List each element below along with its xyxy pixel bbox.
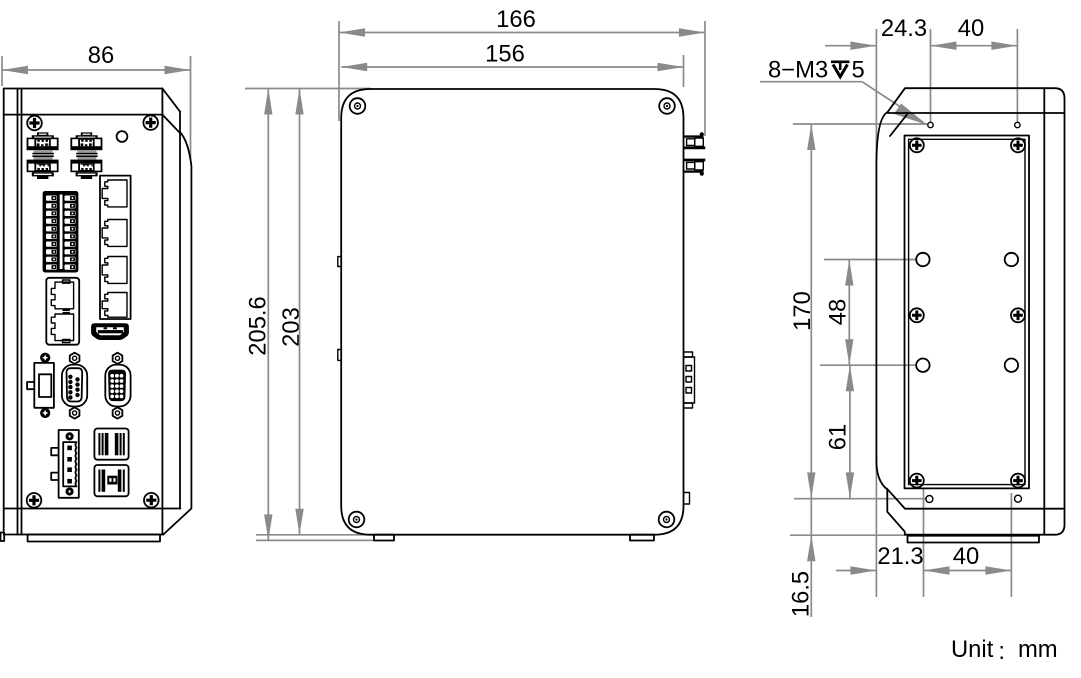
svg-text:203: 203 <box>278 307 305 347</box>
svg-text:21.3: 21.3 <box>877 543 923 570</box>
svg-text:8−M3: 8−M3 <box>768 57 828 84</box>
svg-text:24.3: 24.3 <box>881 15 927 42</box>
svg-text:61: 61 <box>825 424 852 450</box>
svg-text:48: 48 <box>825 299 852 325</box>
svg-text:156: 156 <box>485 41 525 68</box>
svg-text:40: 40 <box>958 15 984 42</box>
svg-text:40: 40 <box>953 543 979 570</box>
svg-text:5: 5 <box>852 57 865 84</box>
svg-text:Unit:mm: Unit:mm <box>951 636 1058 665</box>
svg-text:166: 166 <box>496 6 536 33</box>
svg-text:86: 86 <box>88 42 114 69</box>
